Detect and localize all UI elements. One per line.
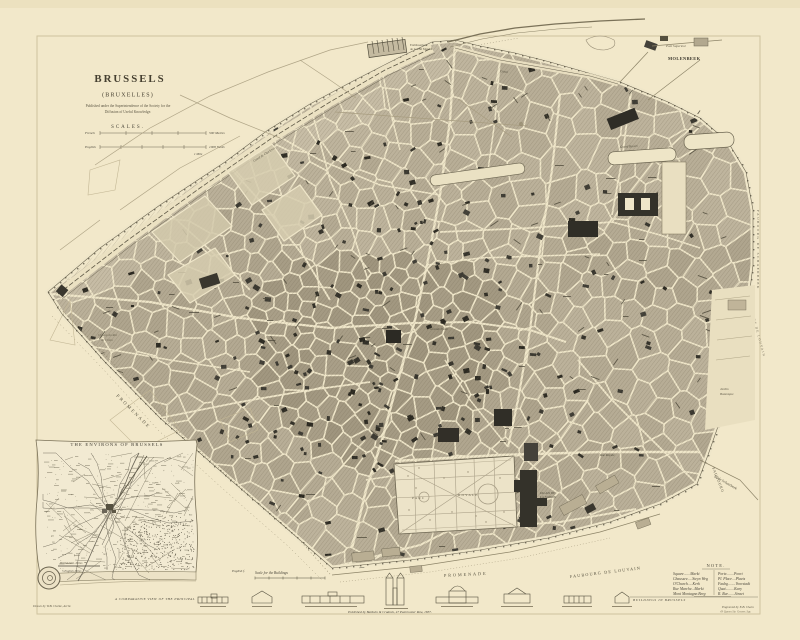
svg-text:British Stat. Miles: British Stat. Miles (60, 561, 83, 565)
svg-text:Published under the Superinten: Published under the Superintendence of t… (86, 104, 171, 108)
svg-text:FAUBOURG DE SCHAERBEEK: FAUBOURG DE SCHAERBEEK (756, 210, 760, 290)
svg-text:Square.......Markt: Square.......Markt (673, 572, 700, 576)
svg-text:BUILDINGS IN BRUSSELS: BUILDINGS IN BRUSSELS (633, 598, 686, 602)
svg-text:de Chien: de Chien (101, 338, 113, 342)
svg-text:Champ du Roi: Champ du Roi (98, 333, 117, 337)
svg-text:Chaussee.....Steyn Weg: Chaussee.....Steyn Weg (673, 577, 708, 581)
svg-text:1 Mile: 1 Mile (194, 152, 203, 156)
svg-text:THE ENVIRONS OF BRUSSELS: THE ENVIRONS OF BRUSSELS (71, 442, 164, 447)
svg-text:Mont Montagne.Berg: Mont Montagne.Berg (672, 592, 706, 596)
svg-text:Pl. Place....Plaets: Pl. Place....Plaets (717, 577, 746, 581)
svg-text:MOLENBEEK: MOLENBEEK (668, 56, 701, 61)
svg-text:de nouvel Marche: de nouvel Marche (410, 47, 433, 51)
svg-text:NOTE.: NOTE. (706, 563, 725, 568)
svg-text:ROYALE: ROYALE (458, 493, 479, 497)
svg-text:(BRUXELLES): (BRUXELLES) (102, 92, 154, 99)
svg-text:Rue Marche...Markt: Rue Marche...Markt (672, 587, 705, 591)
svg-text:Jardin: Jardin (720, 387, 729, 391)
svg-text:500 Metres: 500 Metres (209, 131, 225, 135)
svg-text:French: French (84, 131, 95, 135)
svg-text:SCALES.: SCALES. (111, 125, 145, 130)
svg-text:Botanique: Botanique (720, 392, 734, 396)
svg-text:5 English Miles: 5 English Miles (62, 569, 82, 573)
svg-text:Rue Royale: Rue Royale (599, 453, 615, 457)
svg-text:A COMPARATIVE VIEW OF THE PRIN: A COMPARATIVE VIEW OF THE PRINCIPAL (114, 597, 195, 601)
svg-text:English: English (84, 145, 96, 149)
svg-text:English f.: English f. (231, 569, 245, 573)
svg-text:Grande Place: Grande Place (430, 327, 448, 331)
svg-text:Porte........Poort: Porte........Poort (717, 572, 744, 576)
svg-text:Diffusion of Useful Knowledge.: Diffusion of Useful Knowledge. (105, 110, 152, 114)
svg-text:Scale for the Buildings: Scale for the Buildings (255, 571, 288, 575)
svg-text:Engraved by E.B. Owen: Engraved by E.B. Owen (721, 605, 754, 609)
svg-text:PARC: PARC (412, 496, 425, 500)
svg-text:R. Rue.......Straet: R. Rue.......Straet (717, 592, 745, 596)
svg-text:43 Queen Str. Grosvr. Sqr.: 43 Queen Str. Grosvr. Sqr. (720, 610, 752, 614)
svg-text:BRUSSELS: BRUSSELS (94, 73, 165, 85)
svg-text:O'Church.....Kerk: O'Church.....Kerk (673, 582, 700, 586)
svg-text:Faubg........Voorstadt: Faubg........Voorstadt (717, 582, 751, 586)
svg-text:Quai.........Kaey: Quai.........Kaey (718, 587, 742, 591)
